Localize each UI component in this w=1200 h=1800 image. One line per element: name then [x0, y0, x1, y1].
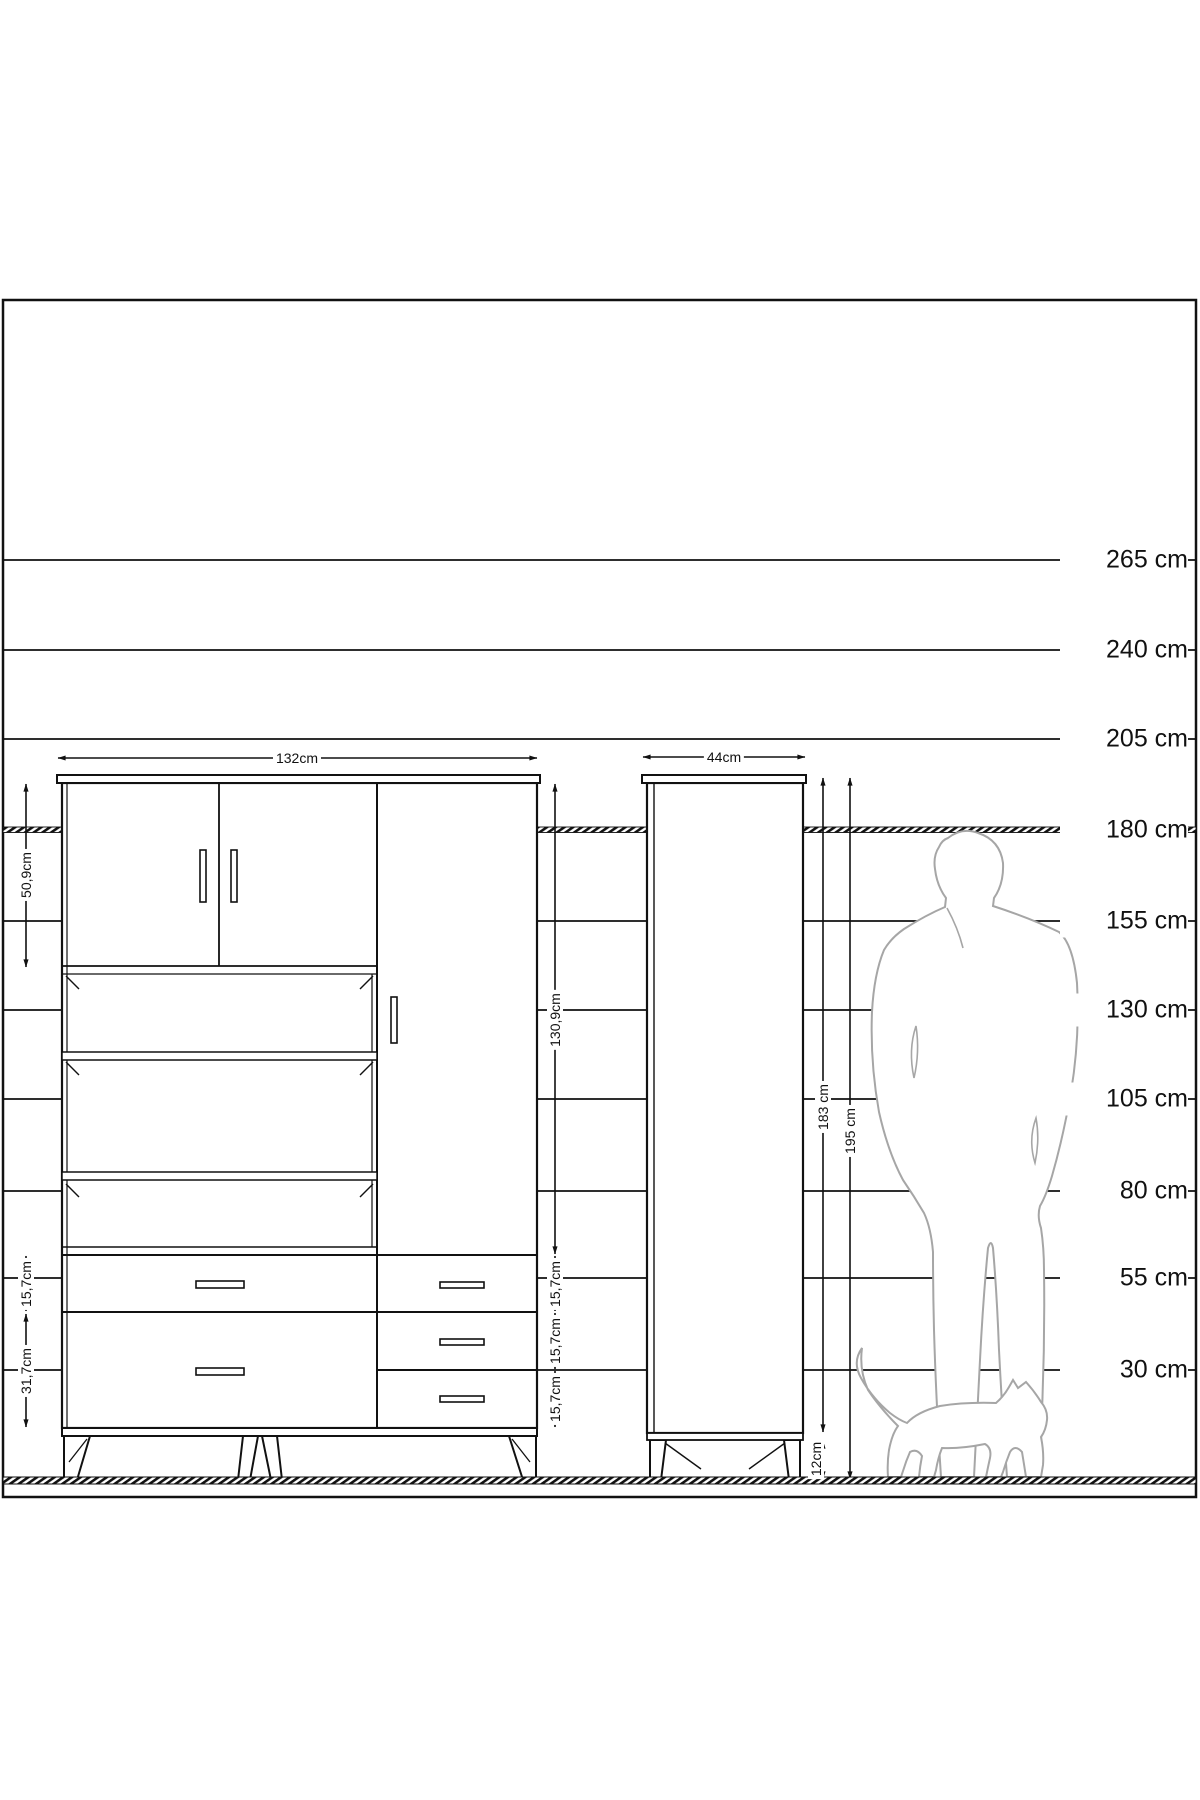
tall-cabinet-total-height-dim: 195 cm — [842, 1105, 858, 1157]
height-label-265: 265 cm — [1060, 544, 1188, 577]
side-drawer-dim-2: 15,7cm — [547, 1315, 563, 1367]
wardrobe-upper-height-dim: 50,9cm — [18, 849, 34, 901]
man-silhouette — [872, 831, 1078, 1477]
tall-cabinet-legs — [650, 1440, 800, 1480]
height-label-55: 55 cm — [1060, 1262, 1188, 1295]
height-label-240: 240 cm — [1060, 634, 1188, 667]
height-label-155: 155 cm — [1060, 905, 1188, 938]
wardrobe-width-dim: 132cm — [273, 750, 321, 766]
diagram-line-art — [0, 0, 1200, 1800]
side-drawer-dim-3: 15,7cm — [547, 1373, 563, 1425]
wardrobe-bottom-slab — [62, 1428, 537, 1436]
tall-cabinet-drawing — [642, 775, 806, 1480]
tall-cabinet-top-slab — [642, 775, 806, 783]
tall-cabinet-legs-dim: 12cm — [808, 1439, 824, 1479]
wardrobe-bottom-drawer-dim: 31,7cm — [18, 1345, 34, 1397]
tall-cabinet-body — [647, 783, 803, 1433]
height-label-105: 105 cm — [1060, 1083, 1188, 1116]
tall-cabinet-body-height-dim: 183 cm — [815, 1081, 831, 1133]
tall-cabinet-width-dim: 44cm — [704, 749, 744, 765]
height-label-130: 130 cm — [1060, 994, 1188, 1027]
height-label-80: 80 cm — [1060, 1175, 1188, 1208]
height-label-30: 30 cm — [1060, 1354, 1188, 1387]
wardrobe-top-drawer-dim: 15,7cm — [18, 1258, 34, 1310]
furniture-dimension-diagram: 265 cm 240 cm 205 cm 180 cm 155 cm 130 c… — [0, 0, 1200, 1800]
wardrobe-legs — [64, 1436, 536, 1480]
tall-cabinet-bottom-rail — [647, 1433, 803, 1440]
wardrobe-middle-height-dim: 130,9cm — [547, 990, 563, 1050]
ground-line — [3, 1477, 1196, 1484]
height-label-180: 180 cm — [1060, 814, 1188, 847]
wardrobe-top-slab — [57, 775, 540, 783]
height-label-205: 205 cm — [1060, 723, 1188, 756]
wardrobe-drawing — [57, 775, 540, 1480]
side-drawer-dim-1: 15,7cm — [547, 1258, 563, 1310]
wardrobe-body — [62, 783, 537, 1428]
